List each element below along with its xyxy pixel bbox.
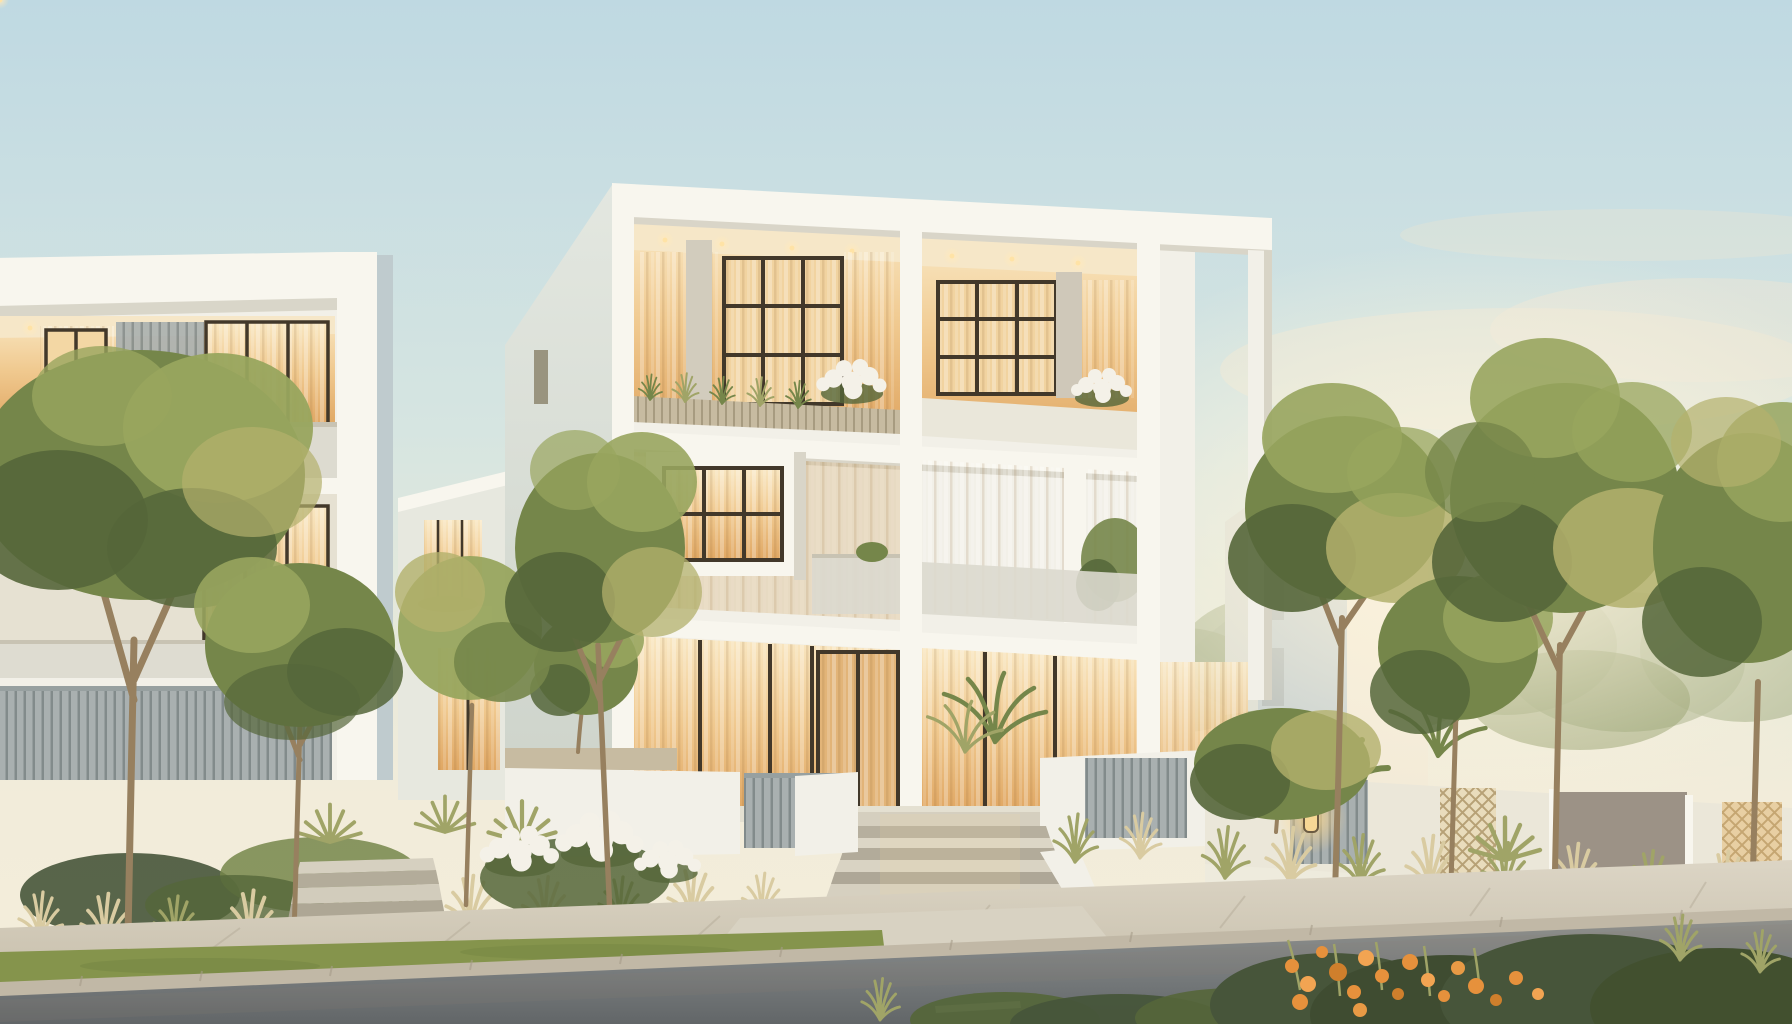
architectural-render-image: [0, 0, 1792, 1024]
slit-window: [534, 350, 548, 404]
interior-column: [686, 240, 712, 416]
step-cheek-wall: [795, 772, 858, 856]
lattice-screen: [1440, 788, 1496, 876]
scene-dusk-villas: [0, 0, 1792, 1024]
side-path-steps: [288, 858, 445, 920]
middle-floor: [632, 452, 1149, 626]
potted-plant: [856, 542, 888, 562]
upper-balcony-right: [922, 236, 1137, 450]
